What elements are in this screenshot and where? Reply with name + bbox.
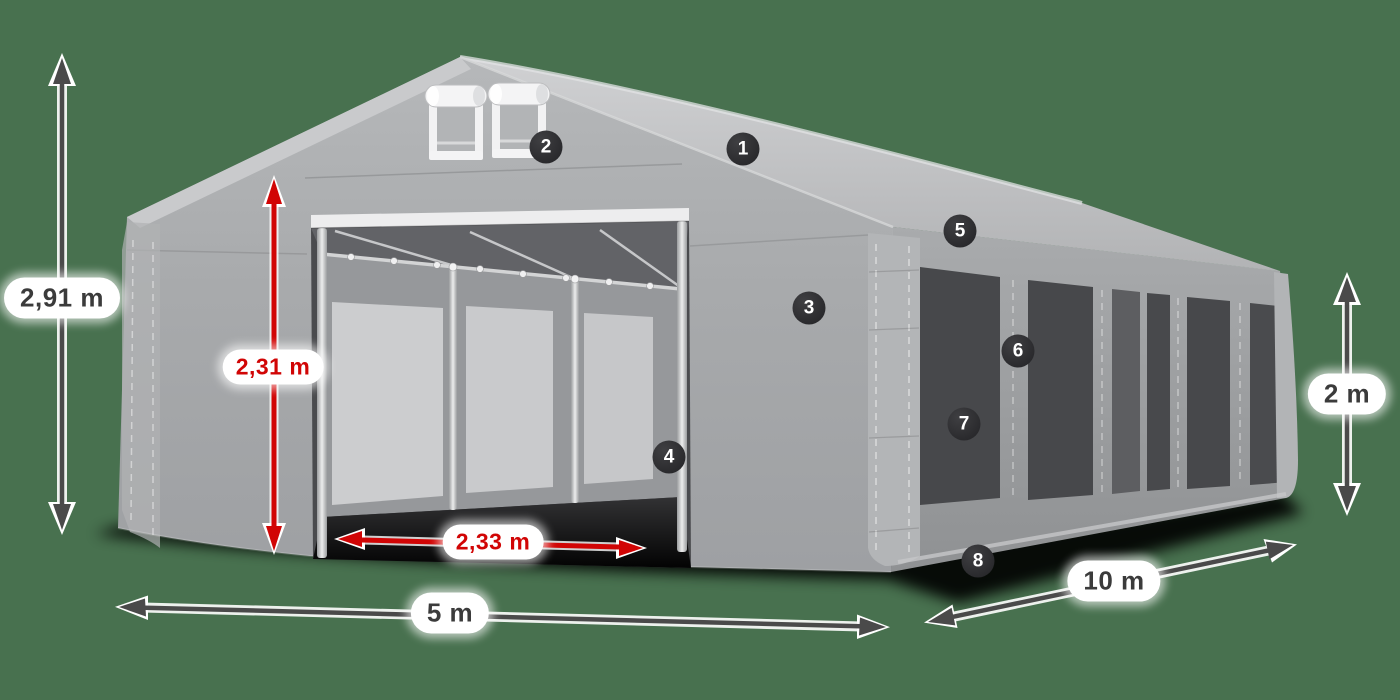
interior-window-panel-1 (332, 302, 443, 505)
side-window-2 (1028, 280, 1093, 500)
tent-product-diagram: 2,91 m 2,31 m 2,33 m 5 m 10 m 2 m 1 2 3 … (0, 0, 1400, 700)
side-window-4 (1187, 297, 1230, 489)
tent-illustration (0, 0, 1400, 700)
front-door-opening (311, 208, 691, 568)
interior-window-panel-2 (466, 306, 553, 493)
side-window-3-left (1112, 289, 1140, 494)
vent-window-1 (425, 85, 487, 160)
arrow-gable-width (115, 596, 890, 640)
vent-window-2 (488, 83, 550, 158)
side-window-3-right (1147, 293, 1170, 491)
door-pole-left (317, 228, 327, 558)
interior-pole-1 (449, 267, 457, 510)
side-window-1 (920, 267, 1000, 505)
arrow-total-height (48, 53, 76, 535)
interior-window-panel-3 (584, 313, 653, 484)
arrow-side-height (1333, 272, 1361, 516)
corner-pillar-front (868, 233, 920, 566)
interior-pole-2 (571, 279, 579, 503)
corner-pillar-far (1274, 272, 1298, 498)
front-left-corner (122, 222, 160, 548)
door-pole-right (677, 221, 687, 552)
